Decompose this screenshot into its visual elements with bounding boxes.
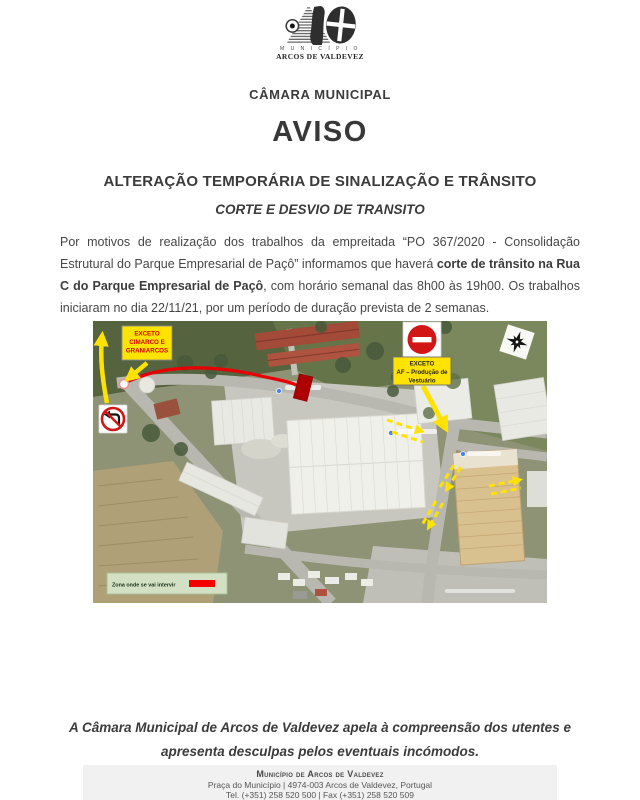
exception-label-right: EXCETO AF – Produção de Vestuário bbox=[393, 357, 451, 385]
exception-label-right-line3: Vestuário bbox=[408, 379, 435, 385]
page-title: AVISO bbox=[0, 117, 640, 148]
exception-label-left-line3: GRANIARCOS bbox=[126, 348, 168, 355]
subtitle-detour: CORTE E DESVIO DE TRANSITO bbox=[0, 202, 640, 217]
footer-org-name: Município de Arcos de Valdevez bbox=[83, 769, 557, 780]
closing-line-2: apresenta desculpas pelos eventuais incó… bbox=[0, 740, 640, 764]
legend-red-bar bbox=[189, 580, 215, 587]
org-heading: CÂMARA MUNICIPAL bbox=[0, 87, 640, 102]
map-legend: Zona onde se vai intervir bbox=[107, 573, 227, 594]
closing-line-1: A Câmara Municipal de Arcos de Valdevez … bbox=[0, 716, 640, 740]
no-left-turn-sign-icon bbox=[99, 405, 127, 433]
notice-paragraph: Por motivos de realização dos trabalhos … bbox=[60, 231, 580, 319]
no-entry-sign-icon bbox=[403, 322, 441, 357]
map-image: EXCETO CIMARCO E GRANIARCOS EXCETO AF – … bbox=[93, 321, 547, 603]
satellite-map: EXCETO CIMARCO E GRANIARCOS EXCETO AF – … bbox=[93, 321, 547, 603]
subtitle-signage: ALTERAÇÃO TEMPORÁRIA DE SINALIZAÇÃO E TR… bbox=[0, 173, 640, 190]
closing-statement: A Câmara Municipal de Arcos de Valdevez … bbox=[0, 716, 640, 764]
legend-label: Zona onde se vai intervir bbox=[112, 583, 176, 589]
exception-label-left: EXCETO CIMARCO E GRANIARCOS bbox=[122, 326, 172, 360]
exception-label-right-line1: EXCETO bbox=[410, 362, 435, 368]
exception-label-left-line1: EXCETO bbox=[134, 331, 160, 338]
municipality-logo: M U N I C Í P I O ARCOS DE VALDEVEZ bbox=[0, 0, 640, 61]
exception-label-left-line2: CIMARCO E bbox=[129, 339, 164, 346]
logo-name-text: ARCOS DE VALDEVEZ bbox=[0, 52, 640, 61]
coat-of-arms-icon bbox=[280, 5, 360, 45]
exception-label-right-line2: AF – Produção de bbox=[396, 370, 448, 376]
footer: Município de Arcos de Valdevez Praça do … bbox=[83, 765, 557, 800]
footer-contacts: Tel. (+351) 258 520 500 | Fax (+351) 258… bbox=[83, 790, 557, 800]
footer-address: Praça do Município | 4974-003 Arcos de V… bbox=[83, 780, 557, 790]
route-start-marker bbox=[119, 379, 128, 388]
